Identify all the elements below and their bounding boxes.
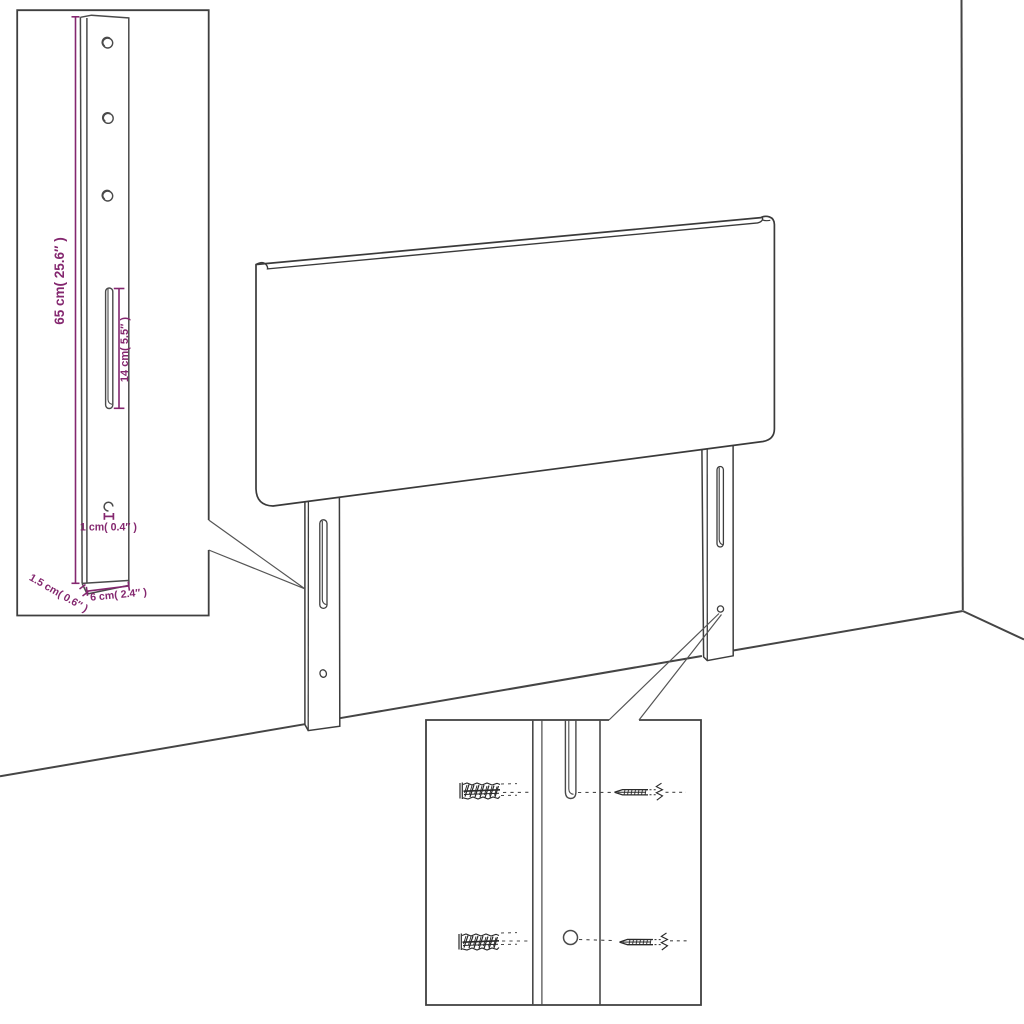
svg-text:14 cm( 5.5″ ): 14 cm( 5.5″ ) xyxy=(119,317,131,383)
svg-text:65 cm( 25.6″ ): 65 cm( 25.6″ ) xyxy=(52,237,67,325)
svg-text:1 cm( 0.4″ ): 1 cm( 0.4″ ) xyxy=(80,522,137,534)
